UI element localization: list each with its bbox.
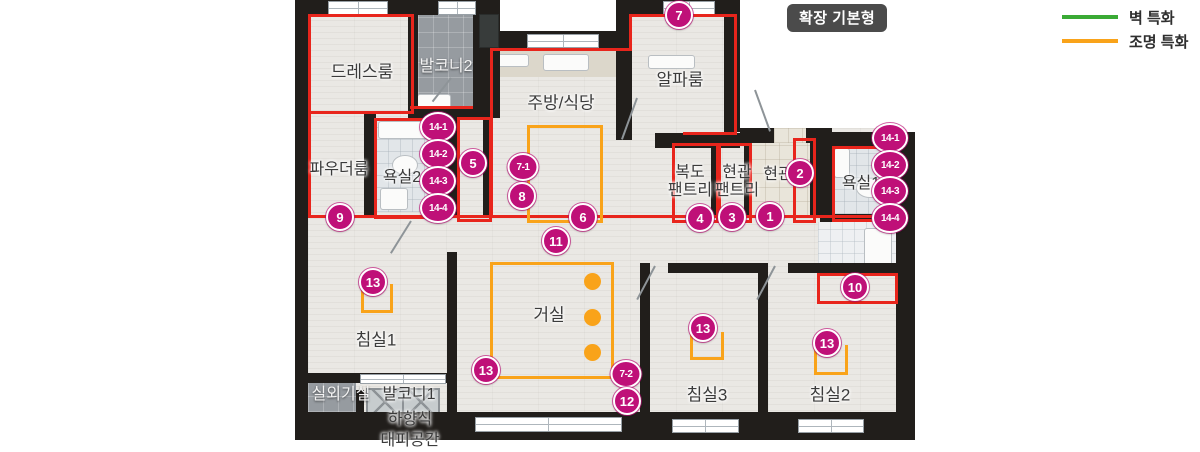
room-label: 현관 팬트리	[715, 164, 759, 200]
legend-lighting-label: 조명 특화	[1129, 31, 1188, 52]
title-badge: 확장 기본형	[787, 4, 887, 32]
room-label: 파우더룸	[310, 161, 369, 179]
marker-10: 10	[841, 273, 869, 301]
marker-2: 2	[786, 159, 814, 187]
room-label: 주방/식당	[527, 93, 594, 112]
marker-14-1: 14-1	[420, 112, 456, 142]
room-label: 침실2	[810, 385, 851, 404]
floorplan-stage: 드레스룸발코니2주방/식당알파룸파우더룸욕실2복도 팬트리현관 팬트리현관욕실1…	[0, 0, 1200, 452]
marker-13: 13	[689, 314, 717, 342]
room-label: 알파룸	[657, 70, 704, 89]
marker-7: 7	[665, 1, 693, 29]
legend-wall-line	[1062, 15, 1118, 19]
room-label: 실외기실	[312, 386, 371, 404]
legend-item-wall: 벽 특화	[1062, 8, 1188, 26]
marker-14-3: 14-3	[420, 166, 456, 196]
marker-14-4: 14-4	[872, 203, 908, 233]
marker-14-1: 14-1	[872, 123, 908, 153]
room-label: 욕실2	[383, 169, 421, 187]
legend-wall-label: 벽 특화	[1129, 7, 1175, 28]
marker-14-2: 14-2	[420, 139, 456, 169]
room-label: 발코니1	[382, 386, 435, 404]
room-label: 침실3	[687, 385, 728, 404]
marker-8: 8	[508, 182, 536, 210]
room-label: 하향식	[388, 411, 432, 429]
marker-12: 12	[613, 387, 641, 415]
marker-9: 9	[326, 203, 354, 231]
marker-14-3: 14-3	[872, 176, 908, 206]
markers-layer: 7914-114-214-314-457-18611431214-114-214…	[0, 0, 1200, 452]
legend: 벽 특화 조명 특화	[1062, 8, 1188, 56]
marker-5: 5	[459, 149, 487, 177]
marker-11: 11	[542, 227, 570, 255]
marker-4: 4	[686, 204, 714, 232]
room-label: 거실	[533, 305, 564, 324]
room-label: 복도 팬트리	[668, 164, 712, 200]
room-label: 발코니2	[419, 58, 472, 76]
marker-13: 13	[813, 329, 841, 357]
legend-item-lighting: 조명 특화	[1062, 32, 1188, 50]
marker-13: 13	[472, 356, 500, 384]
legend-lighting-line	[1062, 39, 1118, 43]
room-label: 침실1	[356, 330, 397, 349]
marker-7-2: 7-2	[611, 360, 642, 388]
room-label: 드레스룸	[331, 62, 394, 81]
marker-1: 1	[756, 202, 784, 230]
marker-7-1: 7-1	[508, 153, 539, 181]
marker-13: 13	[359, 268, 387, 296]
marker-14-4: 14-4	[420, 193, 456, 223]
marker-6: 6	[569, 203, 597, 231]
room-label: 대피공간	[381, 432, 440, 450]
marker-3: 3	[718, 203, 746, 231]
